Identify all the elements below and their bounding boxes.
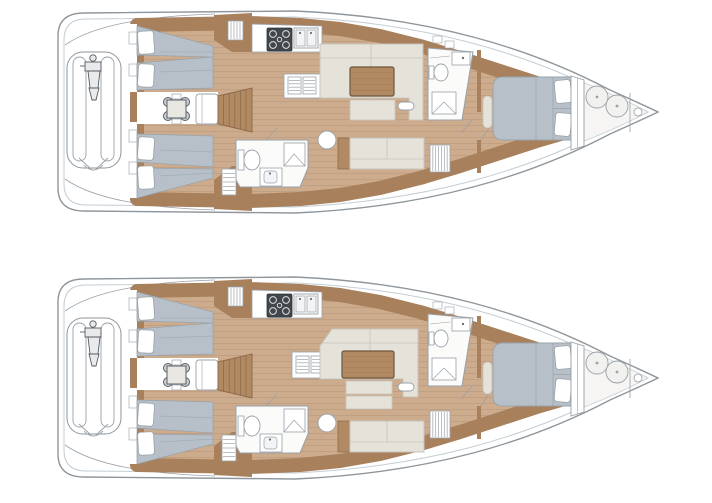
fridge-unit <box>284 74 324 98</box>
windlass <box>634 374 642 382</box>
shower-icon <box>284 409 305 432</box>
bench <box>483 362 492 394</box>
stove-icon <box>267 28 292 51</box>
crew-mess <box>137 358 218 390</box>
washbasin-icon <box>260 168 282 186</box>
saloon-table <box>350 67 394 96</box>
bulkhead <box>477 316 481 378</box>
saloon-table <box>342 351 394 378</box>
deck-hatch <box>445 41 454 48</box>
bench <box>483 96 492 128</box>
deck-hatch <box>433 302 442 309</box>
crew-mess <box>137 92 218 124</box>
washbasin-icon <box>452 52 470 65</box>
windlass <box>634 108 642 116</box>
grab-rail <box>398 102 414 110</box>
sink-icon <box>294 294 318 314</box>
bulkhead <box>477 406 481 439</box>
seat <box>196 360 218 390</box>
toilet-icon <box>429 330 448 347</box>
sink-icon <box>294 28 318 48</box>
companionway-stairs <box>218 354 252 398</box>
toilet-icon <box>429 64 448 81</box>
sail-locker <box>571 76 648 150</box>
washbasin-icon <box>260 434 282 452</box>
grab-rail <box>398 383 414 391</box>
bulkhead <box>477 50 481 112</box>
boat-plan-bottom <box>0 266 712 503</box>
boat-plan-top <box>0 0 712 237</box>
shower-icon <box>284 143 305 166</box>
transom-garage-with-tender <box>67 52 121 170</box>
sail-locker <box>571 342 648 416</box>
pouf <box>318 414 336 432</box>
shower-icon <box>432 358 456 380</box>
toilet-icon <box>238 150 260 170</box>
washbasin-icon <box>452 318 470 331</box>
transom-garage-with-tender <box>67 318 121 436</box>
deck-hatch <box>433 36 442 43</box>
shower-icon <box>432 92 456 114</box>
floorplan-canvas <box>0 0 712 503</box>
pouf <box>318 131 336 149</box>
deck-hatch <box>445 307 454 314</box>
seat <box>196 94 218 124</box>
companionway-stairs <box>218 88 252 132</box>
stove-icon <box>267 294 292 317</box>
table-chairs-icon <box>164 360 190 390</box>
bulkhead <box>477 140 481 173</box>
table-chairs-icon <box>164 94 190 124</box>
toilet-icon <box>238 416 260 436</box>
